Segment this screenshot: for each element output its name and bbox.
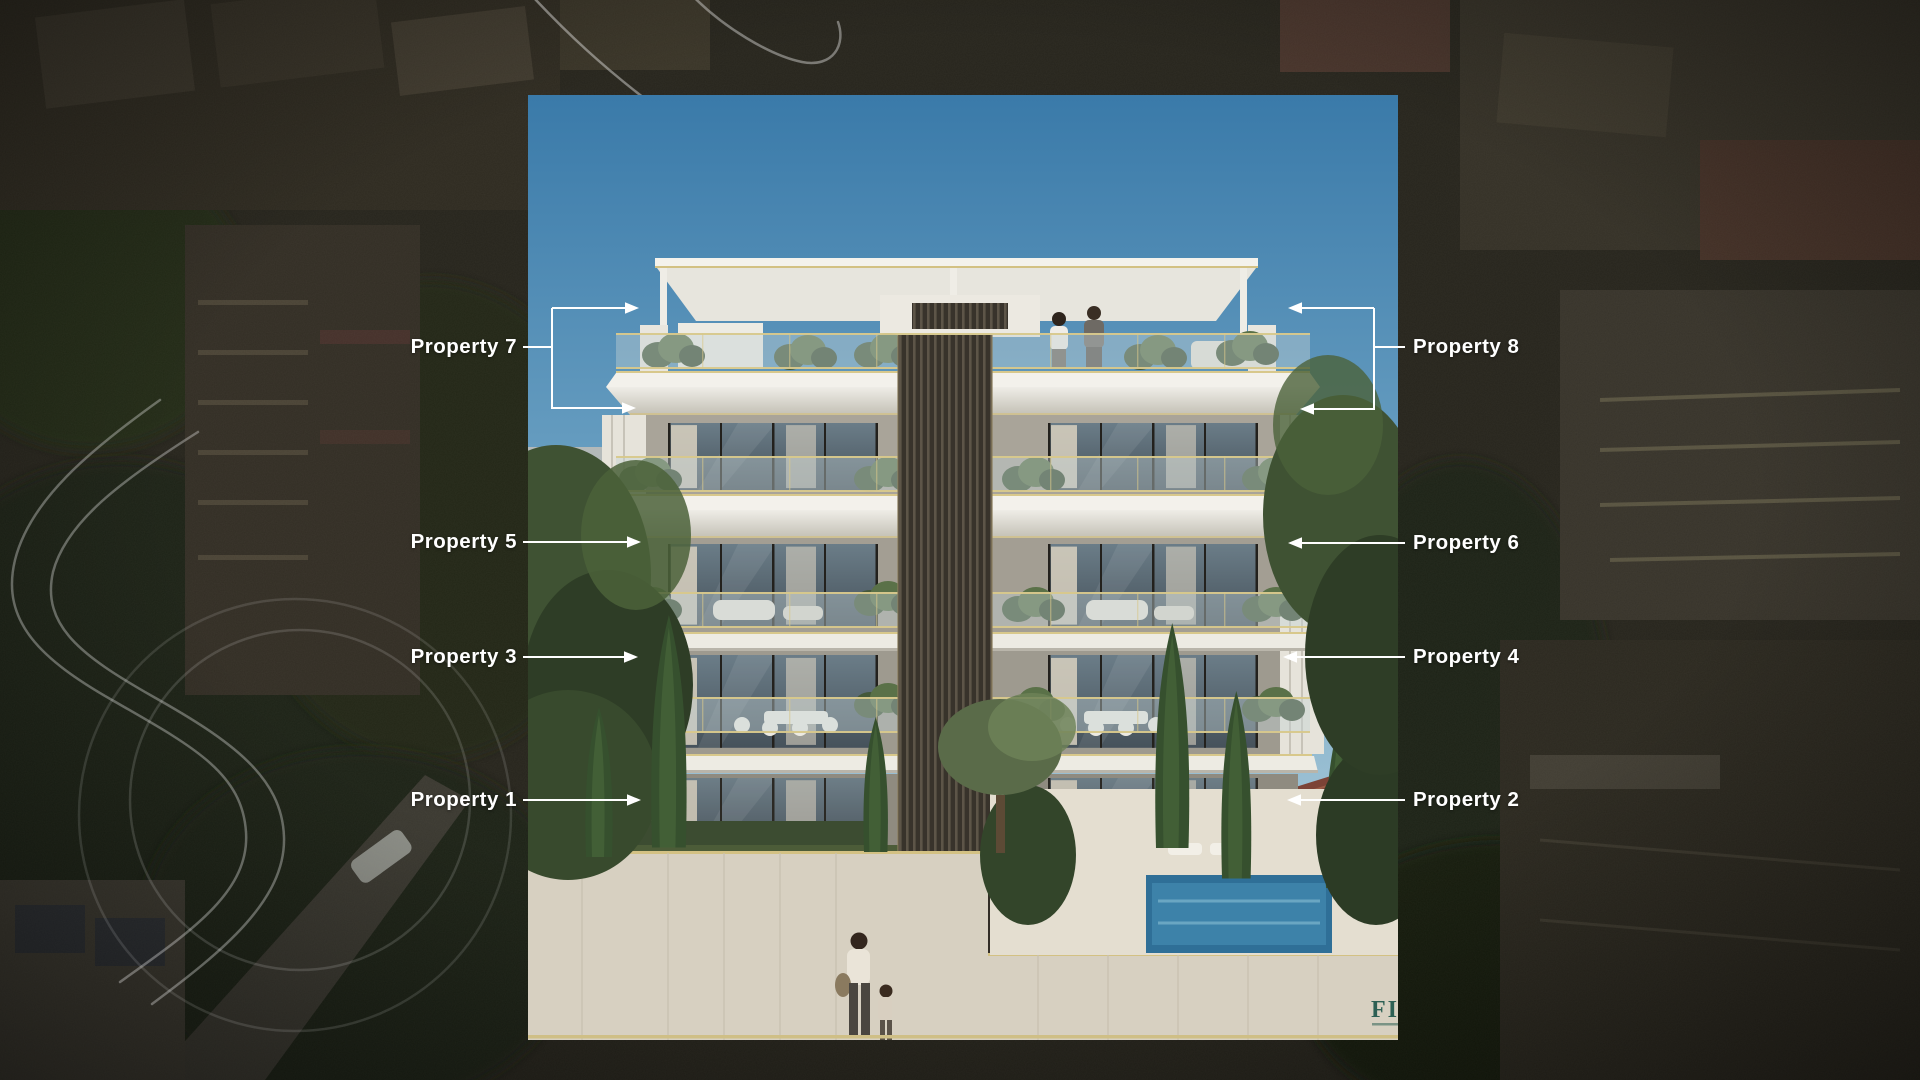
property-2-connector: [1287, 794, 1405, 805]
property-1-label[interactable]: Property 1: [335, 786, 517, 814]
arrow-left-icon: [1300, 403, 1314, 414]
property-6-connector: [1288, 537, 1405, 548]
arrow-left-icon: [1287, 794, 1301, 805]
property-7-label[interactable]: Property 7: [335, 333, 517, 361]
property-4-label[interactable]: Property 4: [1413, 643, 1613, 671]
property-8-label[interactable]: Property 8: [1413, 333, 1613, 361]
arrow-right-icon: [624, 651, 638, 662]
property-7-connector: [523, 302, 639, 413]
arrow-left-icon: [1288, 302, 1302, 313]
property-1-connector: [523, 794, 641, 805]
property-3-label[interactable]: Property 3: [335, 643, 517, 671]
property-2-label[interactable]: Property 2: [1413, 786, 1613, 814]
property-5-connector: [523, 536, 641, 547]
arrow-right-icon: [627, 794, 641, 805]
property-4-connector: [1283, 651, 1405, 662]
property-3-connector: [523, 651, 638, 662]
property-6-label[interactable]: Property 6: [1413, 529, 1613, 557]
arrow-left-icon: [1283, 651, 1297, 662]
arrow-left-icon: [1288, 537, 1302, 548]
property-5-label[interactable]: Property 5: [335, 528, 517, 556]
arrow-right-icon: [625, 302, 639, 313]
arrow-right-icon: [627, 536, 641, 547]
property-8-connector: [1288, 302, 1405, 414]
property-selector-page: FIR: [0, 0, 1920, 1080]
property-connectors: [0, 0, 1920, 1080]
arrow-right-icon: [622, 402, 636, 413]
